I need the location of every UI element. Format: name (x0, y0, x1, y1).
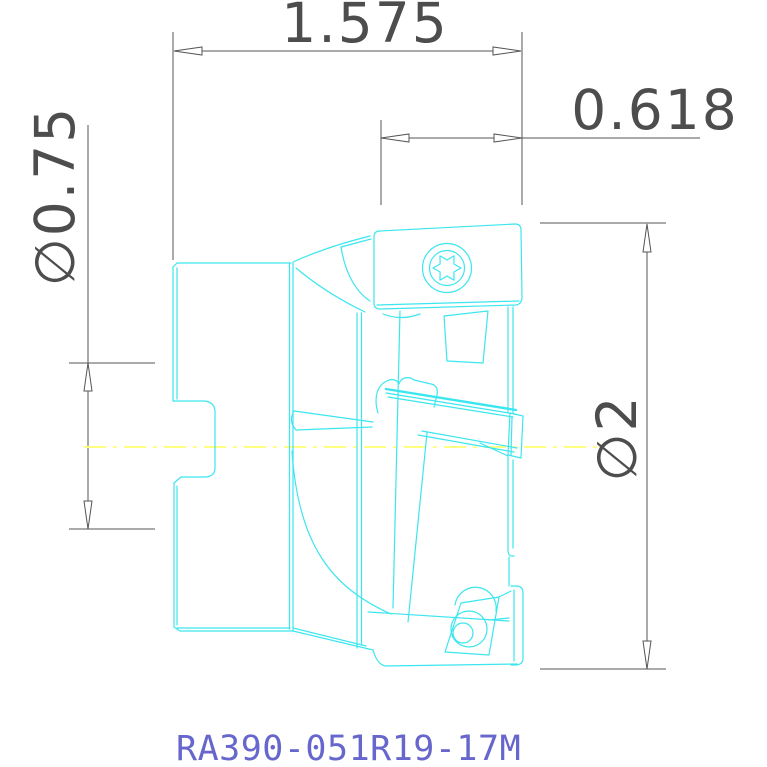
arrow-up-icon (643, 224, 651, 252)
arrow-down-icon (84, 501, 92, 529)
middle-insert (291, 378, 523, 458)
arrow-down-icon (643, 641, 651, 669)
insert-pocket-slot (444, 311, 488, 363)
arrow-left-icon (174, 47, 202, 55)
torx-screw-icon (433, 256, 461, 280)
top-insert (374, 224, 522, 363)
cutter-geometry (173, 224, 523, 666)
head-length-label: 0.618 (545, 82, 765, 138)
part-number: RA390-051R19-17M (176, 729, 521, 767)
screw-head-circle (430, 251, 465, 286)
overall-length-label: 1.575 (255, 0, 475, 51)
head-body (290, 236, 518, 666)
arrow-left-icon (381, 134, 409, 142)
cutting-diameter-label: ∅2 (589, 328, 645, 548)
arrow-right-icon (494, 134, 522, 142)
bottom-insert (445, 586, 523, 665)
arrow-right-icon (493, 47, 521, 55)
shank-diameter-label: ∅0.75 (27, 86, 83, 306)
cad-drawing-canvas: 1.575 0.618 ∅0.75 ∅2 RA390-051R19-17M (0, 0, 767, 767)
arrow-up-icon (84, 363, 92, 391)
